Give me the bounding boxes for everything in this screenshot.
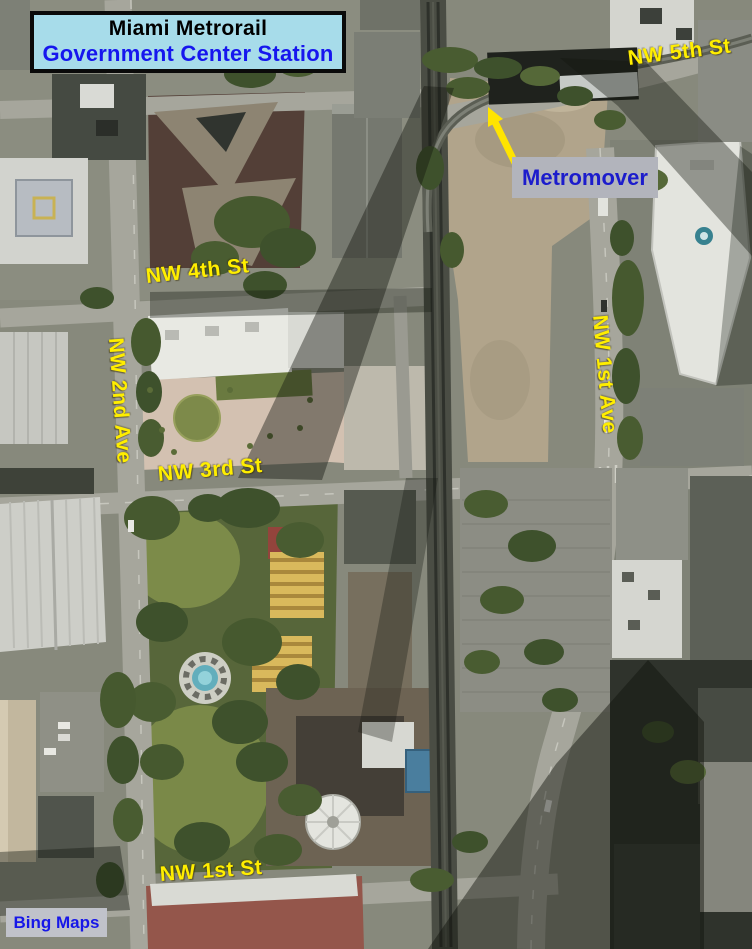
- metromover-callout: Metromover: [512, 157, 658, 198]
- map-screenshot: Miami Metrorail Government Center Statio…: [0, 0, 752, 949]
- bing-maps-credit: Bing Maps: [6, 908, 107, 937]
- map-title-card: Miami Metrorail Government Center Statio…: [30, 11, 346, 73]
- map-title-line2: Government Center Station: [42, 41, 333, 66]
- metromover-arrow: [0, 0, 752, 949]
- map-title-line1: Miami Metrorail: [109, 17, 268, 41]
